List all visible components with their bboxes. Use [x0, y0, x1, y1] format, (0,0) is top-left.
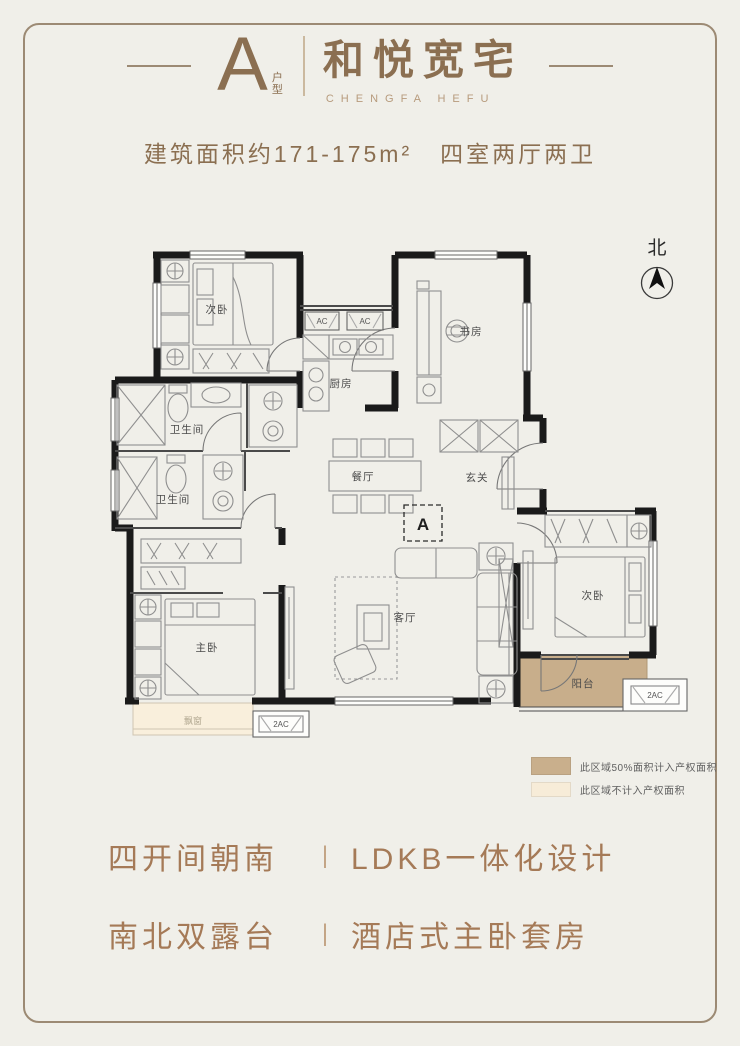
feature-row-2: 南北双露台 | 酒店式主卧套房: [0, 912, 740, 956]
area-info-line: 建筑面积约171-175m² 四室两厅两卫: [0, 135, 740, 169]
ac-label-2: AC: [359, 317, 370, 326]
feature-hotel-suite: 酒店式主卧套房: [339, 912, 669, 956]
area-info: 建筑面积约171-175m²: [144, 135, 412, 169]
room-label-bedroom-east: 次卧: [582, 589, 605, 602]
ac-label-1: AC: [316, 317, 327, 326]
feature-south-facing: 四开间朝南: [71, 834, 315, 878]
page-title: 和悦宽宅: [323, 26, 523, 86]
furniture-dining: [329, 439, 421, 513]
header-divider: [303, 36, 305, 96]
room-label-dining: 餐厅: [352, 470, 375, 483]
legend-swatch-tan: [531, 757, 571, 775]
furniture-dressing-corridor: [141, 539, 241, 589]
furniture-foyer: [440, 420, 518, 509]
room-label-bathroom-1: 卫生间: [170, 423, 205, 436]
layout-info: 四室两厅两卫: [440, 135, 596, 169]
unit-letter: A: [217, 32, 268, 99]
legend-text-50-percent: 此区域50%面积计入产权面积: [580, 759, 717, 774]
feature-row-1: 四开间朝南 | LDKB一体化设计: [0, 834, 740, 878]
header-right-rule: [549, 65, 613, 67]
room-label-study: 书房: [460, 325, 483, 338]
furniture-bathroom-1: [117, 383, 297, 447]
furniture-bedroom-north: [161, 260, 273, 373]
legend: 此区域50%面积计入产权面积 此区域不计入产权面积: [531, 757, 717, 804]
room-label-bedroom-north: 次卧: [206, 303, 229, 316]
header-left-rule: [127, 65, 191, 67]
room-label-bathroom-2: 卫生间: [156, 493, 191, 506]
floor-plan-drawing: 次卧 书房 厨房 卫生间 卫生间 餐厅 玄关 主卧 客厅 次卧 阳台 飘窗 AC…: [95, 243, 695, 743]
legend-item-50-percent: 此区域50%面积计入产权面积: [531, 757, 717, 775]
title-block: 和悦宽宅 CHENGFA HEFU: [323, 26, 523, 105]
ac-label-3: 2AC: [273, 720, 289, 729]
room-label-master-bedroom: 主卧: [196, 641, 219, 654]
walls: [115, 255, 656, 707]
page-subtitle: CHENGFA HEFU: [326, 93, 523, 105]
furniture-study: [417, 281, 468, 403]
poster-page: { "header": { "unit_letter": "A", "unit_…: [0, 0, 740, 1046]
room-label-bay-window: 飘窗: [184, 715, 202, 726]
header: A 户型 和悦宽宅 CHENGFA HEFU: [0, 26, 740, 105]
unit-type-label: 户型: [272, 72, 285, 97]
legend-swatch-cream: [531, 782, 571, 797]
room-label-living: 客厅: [394, 611, 417, 624]
furniture-bedroom-east: [499, 515, 651, 647]
floor-plan: 次卧 书房 厨房 卫生间 卫生间 餐厅 玄关 主卧 客厅 次卧 阳台 飘窗 AC…: [95, 243, 695, 743]
furniture-bathroom-2: [117, 455, 243, 519]
legend-item-excluded: 此区域不计入产权面积: [531, 782, 717, 797]
feature-divider-1: |: [315, 842, 339, 870]
feature-list: 四开间朝南 | LDKB一体化设计 南北双露台 | 酒店式主卧套房: [0, 834, 740, 990]
furniture-kitchen: [303, 335, 393, 411]
feature-double-terrace: 南北双露台: [71, 912, 315, 956]
unit-type-block: A 户型: [217, 32, 285, 99]
room-label-foyer: 玄关: [466, 471, 489, 484]
room-label-kitchen: 厨房: [330, 377, 353, 390]
feature-divider-2: |: [315, 920, 339, 948]
unit-marker-letter: A: [417, 515, 429, 534]
legend-text-excluded: 此区域不计入产权面积: [580, 782, 685, 797]
feature-ldkb: LDKB一体化设计: [339, 834, 669, 878]
ac-label-4: 2AC: [647, 691, 663, 700]
room-label-balcony: 阳台: [572, 677, 595, 690]
